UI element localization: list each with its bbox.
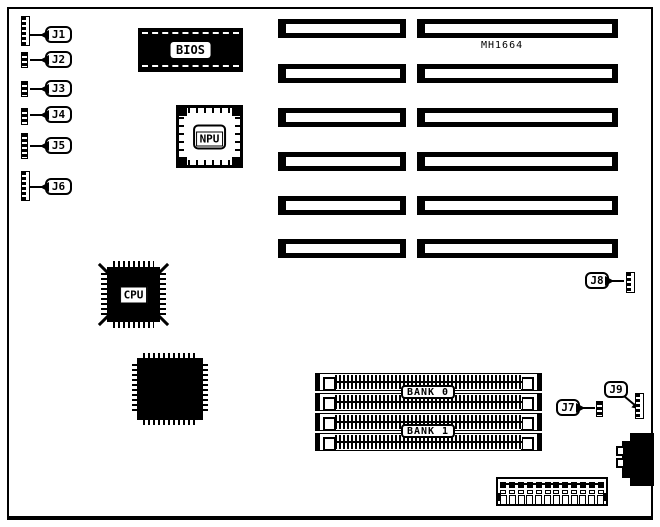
j7-callout-arrow: [578, 407, 595, 409]
j8-label-text: J8: [590, 275, 603, 286]
expansion-slot: [417, 64, 618, 83]
j1-callout-arrow: [30, 34, 47, 36]
cpu-pins-left: [101, 273, 107, 316]
expansion-slot: [417, 108, 618, 127]
npu-pins-top: [188, 108, 231, 113]
power-pin: [579, 495, 586, 505]
power-pin: [536, 490, 542, 494]
power-pin: [553, 482, 559, 488]
j1-label-text: J1: [52, 29, 65, 40]
j1-label: J1: [45, 26, 72, 43]
asic-pins-left: [132, 364, 138, 414]
power-pin: [571, 490, 577, 494]
cpu-chip-label: CPU: [120, 286, 148, 303]
simm-socket-part: [521, 417, 534, 431]
keyboard-pin-box: [616, 446, 625, 456]
npu-pins-bottom: [188, 160, 231, 165]
cpu-pins-top: [113, 261, 154, 267]
power-pin-row-top: [500, 480, 604, 489]
power-connector: [496, 477, 608, 506]
bios-socket-dash-bottom: [142, 65, 239, 67]
asic-pins-top: [143, 353, 197, 359]
power-pin: [518, 490, 524, 494]
asic-pins-bottom: [143, 419, 197, 425]
expansion-slot: [278, 196, 406, 215]
expansion-slot: [278, 19, 406, 38]
j3-label-text: J3: [52, 83, 65, 94]
cpu-pins-right: [160, 273, 166, 316]
j7-pin-header: [596, 401, 603, 417]
power-pin: [562, 490, 568, 494]
simm-socket-part: [316, 394, 320, 410]
bank1-label-text: BANK 1: [407, 426, 449, 437]
j4-label-text: J4: [52, 109, 65, 120]
npu-pins-left: [179, 117, 184, 156]
power-pin: [562, 495, 569, 505]
j6-callout-arrow: [30, 186, 47, 188]
bios-socket-dash-top: [142, 32, 239, 34]
bios-chip: BIOS: [138, 28, 243, 72]
power-pin: [500, 490, 506, 494]
simm-socket-part: [335, 402, 522, 409]
expansion-slot: [278, 239, 406, 258]
power-pin: [500, 482, 506, 488]
j5-callout-arrow: [30, 145, 47, 147]
bios-chip-label: BIOS: [170, 42, 211, 58]
simm-socket-part: [521, 397, 534, 411]
j4-label: J4: [45, 106, 72, 123]
j3-pin-header: [21, 81, 28, 97]
simm-socket-part: [537, 374, 541, 390]
keyboard-pin-box: [616, 458, 625, 468]
npu-corner: [232, 108, 240, 116]
power-pin: [518, 495, 525, 505]
simm-socket-part: [537, 394, 541, 410]
power-pin: [598, 482, 604, 488]
npu-corner: [179, 157, 187, 165]
j9-pin-header: [635, 393, 644, 419]
power-pin: [589, 490, 595, 494]
power-pin: [500, 495, 507, 505]
expansion-slot: [278, 108, 406, 127]
expansion-slot: [417, 196, 618, 215]
j4-pin-header: [21, 108, 28, 125]
j2-label: J2: [45, 51, 72, 68]
cpu-pins-bottom: [113, 322, 154, 328]
j3-callout-arrow: [30, 88, 47, 90]
keyboard-connector-body: [630, 476, 648, 486]
power-pin: [545, 490, 551, 494]
npu-pins-right: [235, 117, 240, 156]
npu-corner: [232, 157, 240, 165]
j4-callout-arrow: [30, 114, 47, 116]
power-pin: [518, 482, 524, 488]
expansion-slot: [417, 19, 618, 38]
bank0-label-text: BANK 0: [407, 387, 449, 398]
bank0-label: BANK 0: [401, 385, 455, 399]
simm-socket-part: [316, 374, 320, 390]
power-pin: [509, 495, 516, 505]
j2-pin-header: [21, 52, 28, 68]
simm-socket-part: [521, 377, 534, 391]
simm-socket-part: [521, 437, 534, 451]
asic-chip: [137, 358, 203, 420]
j8-label: J8: [585, 272, 609, 289]
j7-label-text: J7: [561, 402, 574, 413]
power-pin: [562, 482, 568, 488]
simm-socket-part: [316, 434, 320, 450]
npu-corner: [179, 108, 187, 116]
simm-socket-part: [335, 415, 522, 422]
simm-socket-part: [335, 442, 522, 449]
power-pin: [553, 495, 560, 505]
expansion-slot: [278, 152, 406, 171]
power-pin: [589, 482, 595, 488]
j6-pin-header: [21, 171, 30, 201]
keyboard-connector-body: [630, 433, 648, 443]
cpu-chip: CPU: [107, 267, 160, 322]
j2-callout-arrow: [30, 59, 47, 61]
board-model-text: MH1664: [481, 40, 523, 51]
power-pin-row-middle: [500, 490, 604, 494]
power-pin: [580, 482, 586, 488]
power-pin: [527, 482, 533, 488]
j6-label-text: J6: [52, 181, 65, 192]
power-pin: [598, 490, 604, 494]
power-pin: [509, 490, 515, 494]
npu-socket: NPU: [176, 105, 243, 168]
simm-socket-part: [537, 434, 541, 450]
npu-chip-label: NPU: [196, 131, 224, 146]
j8-callout-arrow: [607, 280, 624, 282]
j1-pin-header: [21, 16, 30, 46]
power-pin: [536, 482, 542, 488]
power-pin: [526, 495, 533, 505]
power-pin: [545, 482, 551, 488]
power-pin-row-bottom: [500, 495, 604, 505]
j8-pin-header: [626, 272, 635, 293]
power-pin: [553, 490, 559, 494]
power-pin: [588, 495, 595, 505]
power-pin: [509, 482, 515, 488]
keyboard-connector-body: [622, 441, 649, 478]
expansion-slot: [417, 239, 618, 258]
motherboard-diagram: J1 J2 J3 J4 J5 J6 BIOS NPU MH1664 CPU: [0, 0, 660, 527]
simm-socket-part: [316, 414, 320, 430]
npu-label-box: NPU: [193, 124, 227, 149]
power-pin: [527, 490, 533, 494]
j5-label-text: J5: [52, 140, 65, 151]
j5-pin-header: [21, 133, 28, 159]
expansion-slot: [417, 152, 618, 171]
j7-label: J7: [556, 399, 580, 416]
j5-label: J5: [45, 137, 72, 154]
power-pin: [535, 495, 542, 505]
bank1-label: BANK 1: [401, 424, 455, 438]
power-pin: [571, 495, 578, 505]
simm-socket-part: [335, 375, 522, 382]
power-pin: [571, 482, 577, 488]
simm-socket-part: [537, 414, 541, 430]
j9-label-text: J9: [609, 384, 622, 395]
asic-pins-right: [202, 364, 208, 414]
j6-label: J6: [45, 178, 72, 195]
expansion-slot: [278, 64, 406, 83]
power-pin: [544, 495, 551, 505]
j3-label: J3: [45, 80, 72, 97]
power-pin: [597, 495, 604, 505]
j2-label-text: J2: [52, 54, 65, 65]
power-pin: [580, 490, 586, 494]
